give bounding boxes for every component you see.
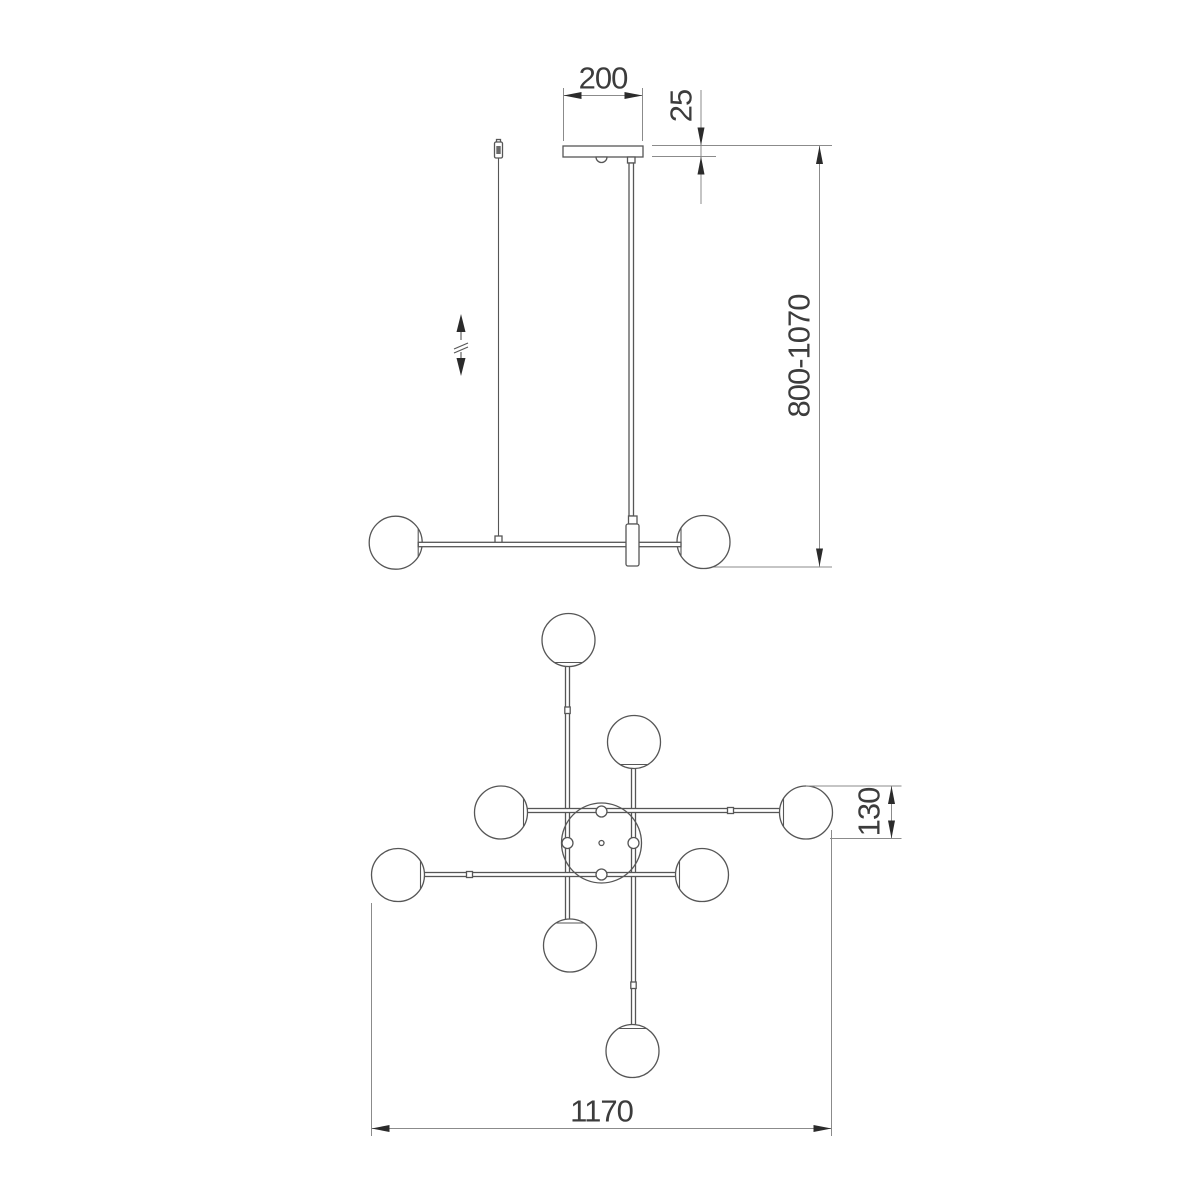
side-view: 200 25 800-1070 (369, 61, 832, 570)
arrowhead-right (814, 1125, 832, 1132)
drawing-canvas: 200 25 800-1070 (0, 0, 1200, 1200)
globe (372, 849, 425, 902)
rod-hub (626, 524, 639, 566)
arrowhead-down (816, 549, 823, 567)
globe (544, 919, 597, 972)
globe (542, 614, 595, 667)
globe-left (369, 516, 422, 569)
arm-vertical-1 (566, 664, 570, 922)
canopy-hole (596, 869, 607, 880)
canopy-bump (596, 157, 607, 163)
suspension-cable (495, 140, 503, 544)
dim-overall-width-label: 1170 (570, 1094, 633, 1129)
arm-horizontal-2 (421, 873, 680, 877)
cross-bar (418, 542, 681, 546)
dim-suspension-height: 800-1070 (703, 146, 832, 567)
plan-view: 130 1170 (372, 614, 902, 1137)
dim-canopy-width: 200 (564, 61, 643, 142)
arm-horizontal-1 (524, 809, 784, 813)
arm-connector (631, 982, 636, 989)
globe (676, 849, 729, 902)
rod-top-connector (628, 157, 636, 163)
dim-suspension-height-label: 800-1070 (782, 294, 817, 418)
arrowhead-up (888, 786, 895, 804)
arrowhead-down (698, 128, 705, 146)
arm-connector (467, 872, 473, 878)
canopy-hole (562, 838, 573, 849)
arm-connector (728, 808, 734, 814)
adjust-arrow-down (457, 358, 466, 376)
arm-connector (565, 707, 570, 714)
arrowhead-left (372, 1125, 390, 1132)
ceiling-canopy (563, 146, 643, 157)
canopy-hole (628, 838, 639, 849)
plan-canopy (562, 803, 642, 883)
globe (780, 786, 833, 839)
dim-canopy-thickness-label: 25 (664, 90, 699, 122)
hub-cap (629, 516, 638, 524)
dim-canopy-thickness: 25 (652, 90, 832, 204)
hanger-rod (629, 163, 634, 516)
arrowhead-up (816, 146, 823, 164)
height-adjust-icon (454, 314, 468, 376)
dim-canopy-width-label: 200 (579, 61, 628, 96)
arrowhead-up (698, 157, 705, 175)
arrowhead-down (888, 821, 895, 839)
canopy-hole (596, 806, 607, 817)
canopy-center-pin (599, 841, 604, 846)
adjust-arrow-up (457, 314, 466, 332)
globe (608, 716, 661, 769)
cable-top-fitting-core (496, 146, 500, 154)
globe-right (677, 516, 730, 569)
dim-globe-diameter-label: 130 (852, 787, 887, 836)
globe (475, 786, 528, 839)
globe (606, 1025, 659, 1078)
pendant-side (369, 146, 730, 569)
